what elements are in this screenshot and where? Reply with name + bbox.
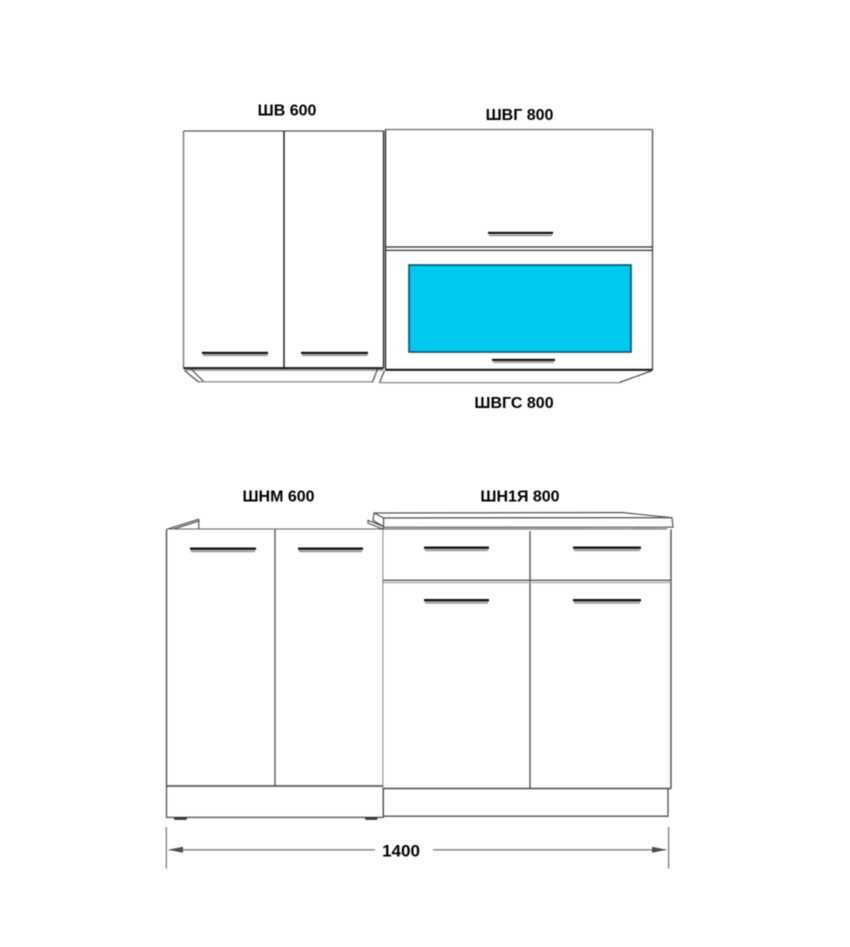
svg-text:ШВГС 800: ШВГС 800 xyxy=(474,395,553,412)
svg-text:1400: 1400 xyxy=(382,841,420,860)
svg-text:ШНМ 600: ШНМ 600 xyxy=(242,489,314,506)
svg-text:ШН1Я 800: ШН1Я 800 xyxy=(480,489,559,506)
svg-text:ШВ 600: ШВ 600 xyxy=(258,103,317,120)
svg-text:ШВГ 800: ШВГ 800 xyxy=(486,107,554,124)
